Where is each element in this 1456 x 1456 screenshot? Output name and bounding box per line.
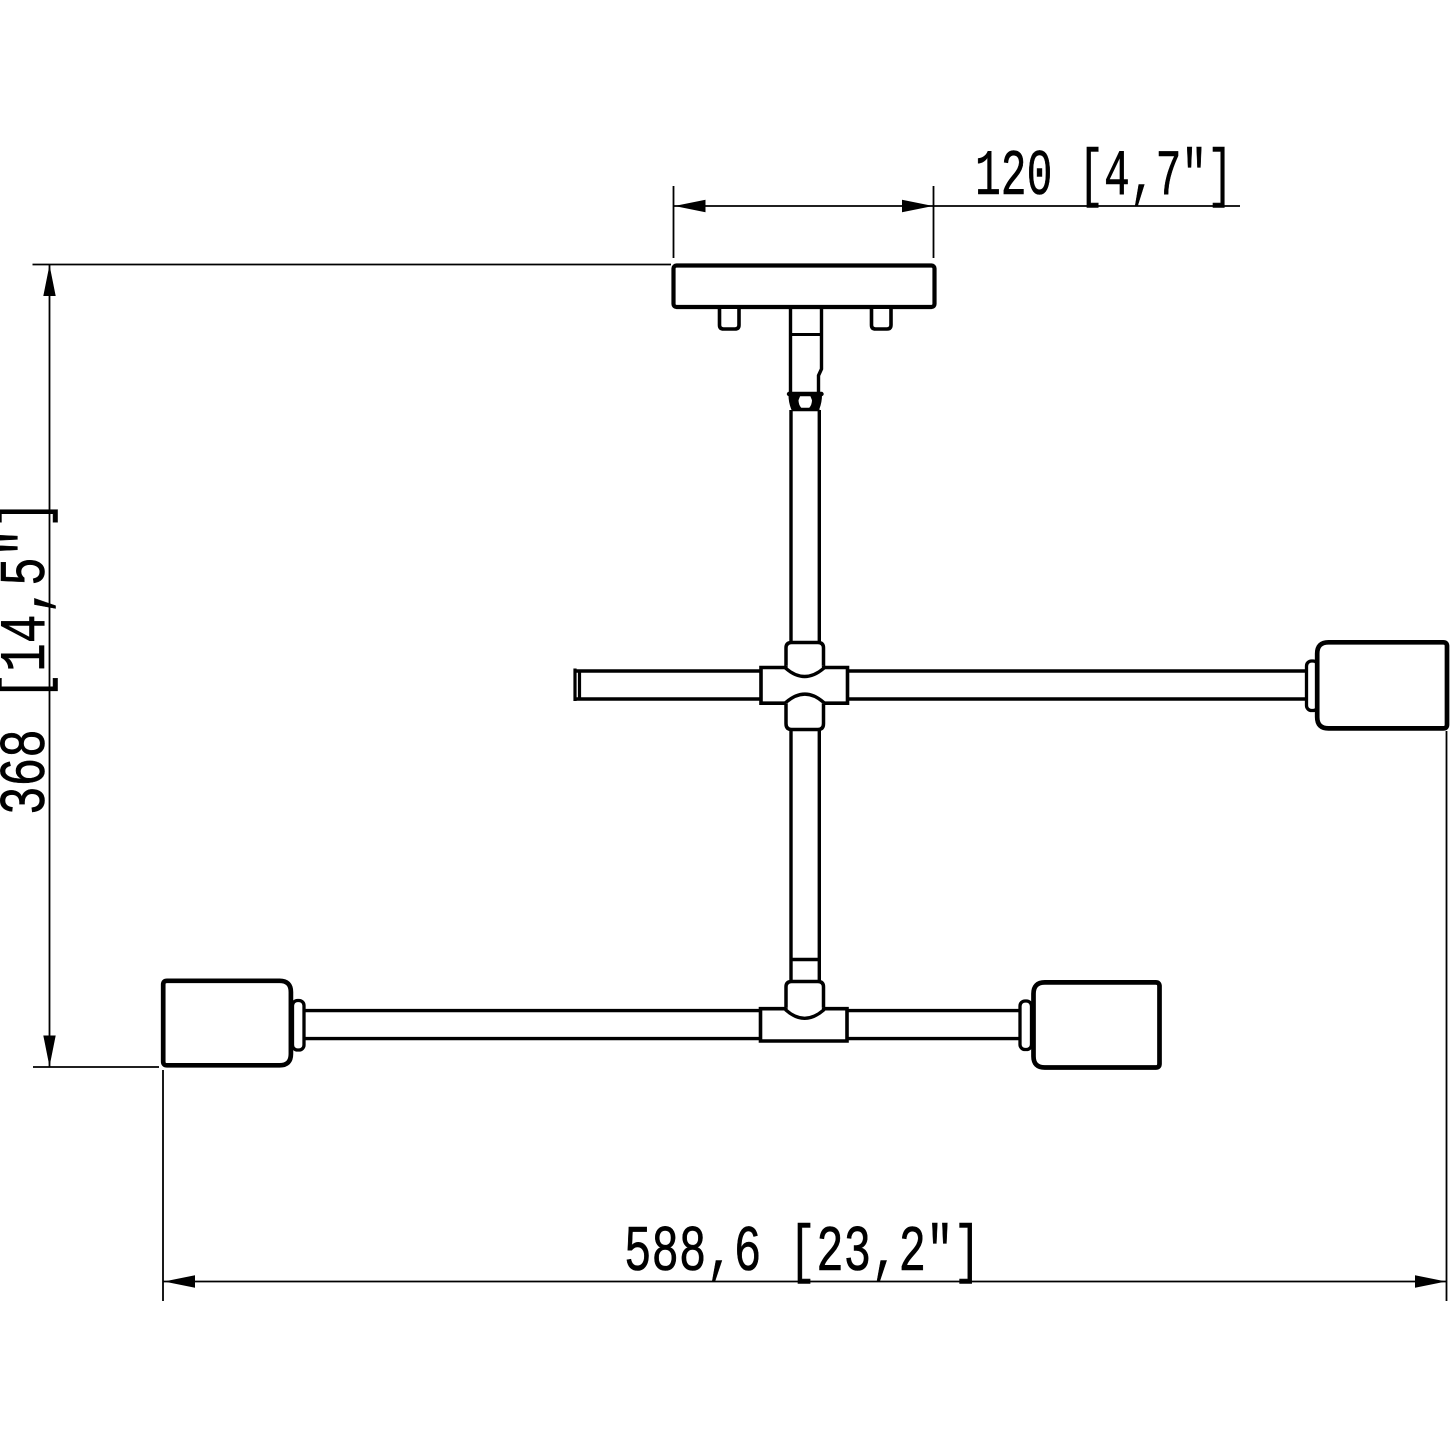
- svg-text:368 [14,5″]: 368 [14,5″]: [0, 500, 64, 815]
- svg-text:588,6 [23,2″]: 588,6 [23,2″]: [624, 1216, 981, 1290]
- svg-text:120 [4,7″]: 120 [4,7″]: [975, 140, 1233, 214]
